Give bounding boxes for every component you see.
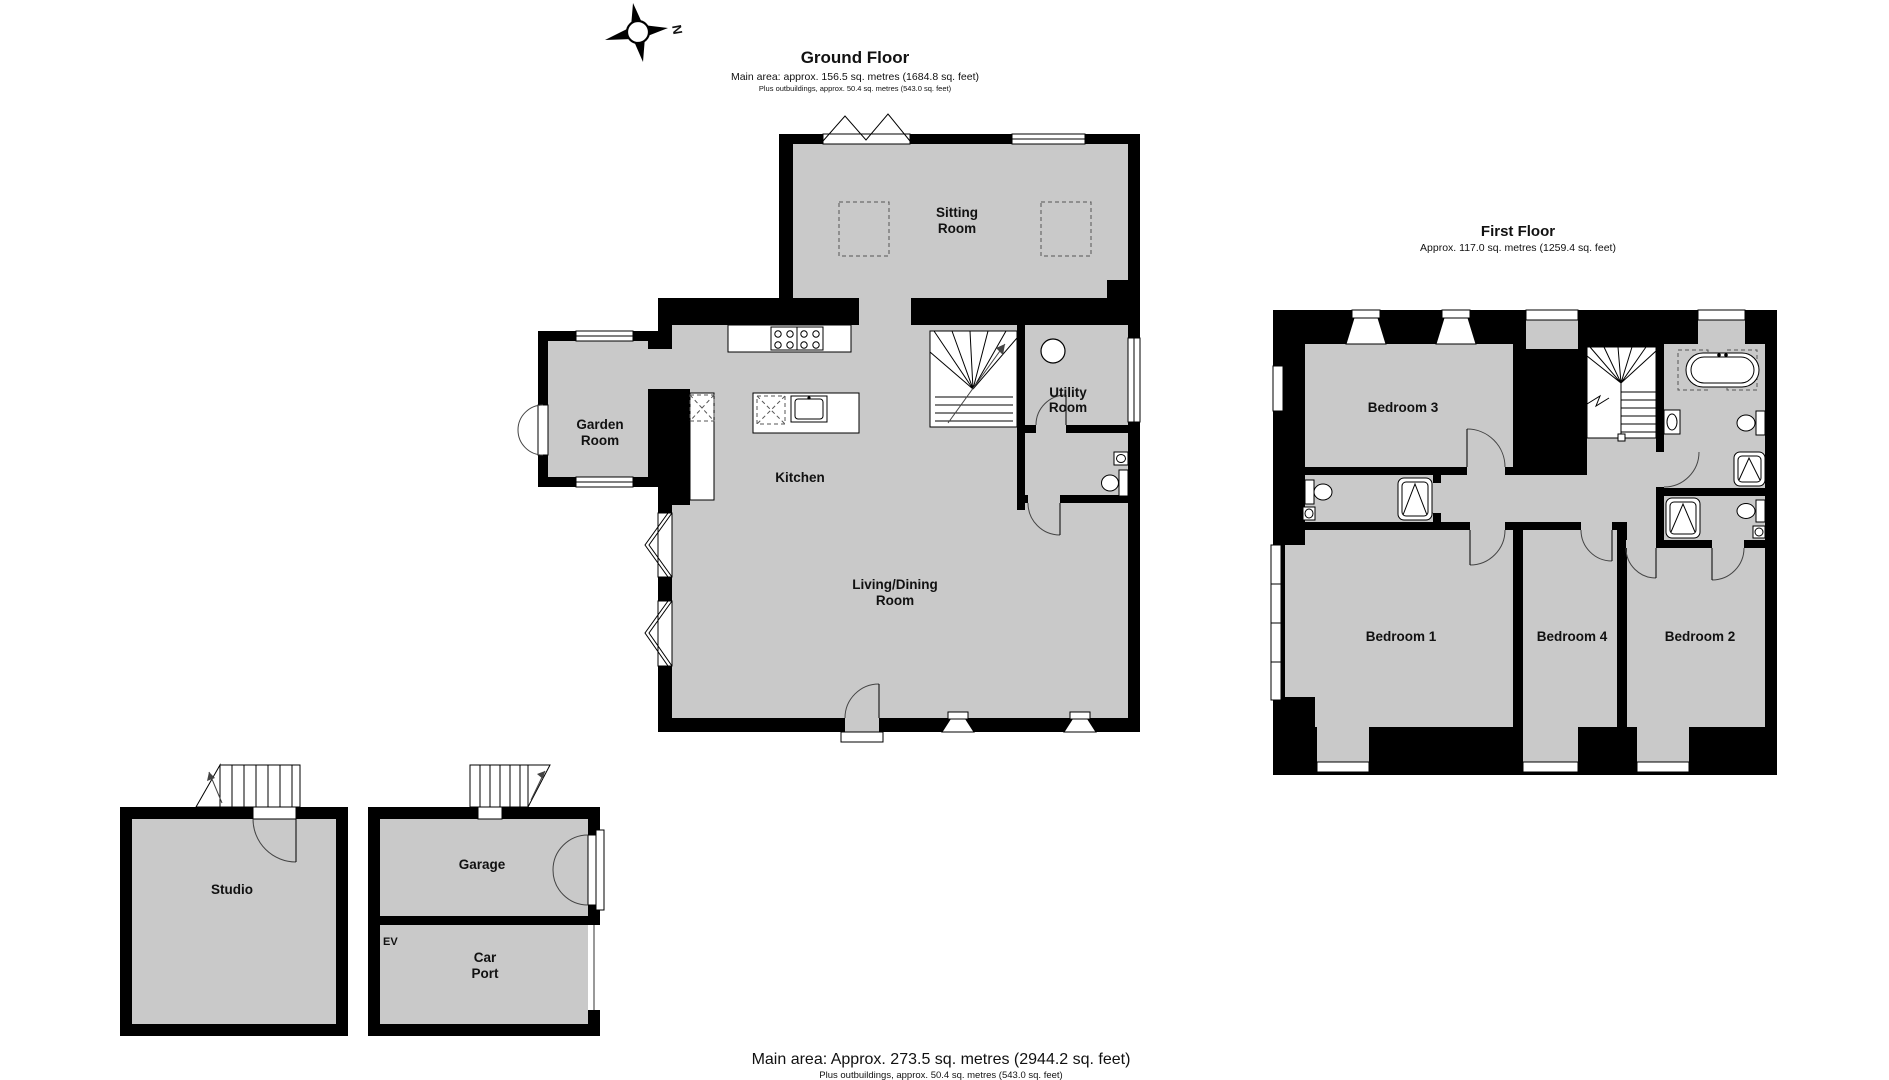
staircase: [1587, 347, 1656, 441]
first-floor-plan: Bedroom 3 Bedroom 1 Bedroom 4 Bedroom 2: [1271, 310, 1777, 775]
french-doors: [518, 405, 548, 455]
tall-unit: [690, 393, 714, 500]
room-label-sitting-2: Room: [938, 221, 976, 236]
sink: [791, 396, 827, 422]
studio-building: Studio: [120, 765, 348, 1036]
room-label-garage: Garage: [459, 857, 506, 872]
shower: [1666, 498, 1700, 538]
room-label-living-2: Room: [876, 593, 914, 608]
window: [1012, 134, 1085, 144]
compass-north-label: N: [669, 24, 685, 36]
utility-tank: [1041, 339, 1065, 363]
first-floor-title: First Floor: [1481, 223, 1555, 240]
room-label-studio: Studio: [211, 882, 253, 897]
ground-floor-plan: Sitting Room Garden Room Kitchen Utility…: [518, 114, 1140, 742]
footer-outbuildings: Plus outbuildings, approx. 50.4 sq. metr…: [819, 1070, 1062, 1080]
ensuite-sink: [1303, 507, 1315, 520]
staircase: [930, 331, 1017, 427]
room-label-ev: EV: [383, 936, 398, 948]
room-label-carport-2: Port: [472, 966, 500, 981]
footer: Main area: Approx. 273.5 sq. metres (294…: [752, 1051, 1131, 1080]
room-label-utility-2: Room: [1049, 400, 1087, 415]
ground-floor-header: Ground Floor Main area: approx. 156.5 sq…: [731, 48, 979, 93]
first-floor-header: First Floor Approx. 117.0 sq. metres (12…: [1420, 223, 1616, 254]
floorplan-canvas: N Ground Floor Main area: approx. 156.5 …: [0, 0, 1889, 1080]
window: [1128, 338, 1140, 422]
shower: [1398, 478, 1432, 520]
first-floor-area: Approx. 117.0 sq. metres (1259.4 sq. fee…: [1420, 242, 1616, 254]
garage-building: Garage EV Car Port: [368, 765, 604, 1036]
room-label-living-1: Living/Dining: [852, 577, 938, 592]
room-label-bedroom2: Bedroom 2: [1665, 629, 1736, 644]
kitchen-counter-hob: [728, 325, 851, 352]
bifold-door: [823, 114, 910, 144]
room-label-utility-1: Utility: [1049, 385, 1087, 400]
compass-rose: N: [605, 3, 686, 62]
room-label-garden-1: Garden: [576, 417, 623, 432]
floorplan-svg: N Ground Floor Main area: approx. 156.5 …: [0, 0, 1889, 1080]
room-label-bedroom4: Bedroom 4: [1537, 629, 1608, 644]
room-label-carport-1: Car: [474, 950, 497, 965]
room-label-garden-2: Room: [581, 433, 619, 448]
ground-floor-outbuildings-note: Plus outbuildings, approx. 50.4 sq. metr…: [759, 84, 952, 93]
ensuite2-sink: [1753, 526, 1765, 538]
room-label-kitchen: Kitchen: [775, 470, 825, 485]
kitchen-island: [753, 393, 859, 433]
room-label-bedroom1: Bedroom 1: [1366, 629, 1437, 644]
room-label-bedroom3: Bedroom 3: [1368, 400, 1439, 415]
bathroom-sink: [1664, 410, 1680, 434]
ground-floor-title: Ground Floor: [801, 48, 910, 67]
ground-floor-area: Main area: approx. 156.5 sq. metres (168…: [731, 71, 979, 83]
room-label-sitting-1: Sitting: [936, 205, 978, 220]
wc-sink: [1114, 452, 1128, 465]
shower: [1734, 452, 1765, 486]
footer-main-area: Main area: Approx. 273.5 sq. metres (294…: [752, 1051, 1131, 1068]
external-stairs: [196, 765, 300, 807]
